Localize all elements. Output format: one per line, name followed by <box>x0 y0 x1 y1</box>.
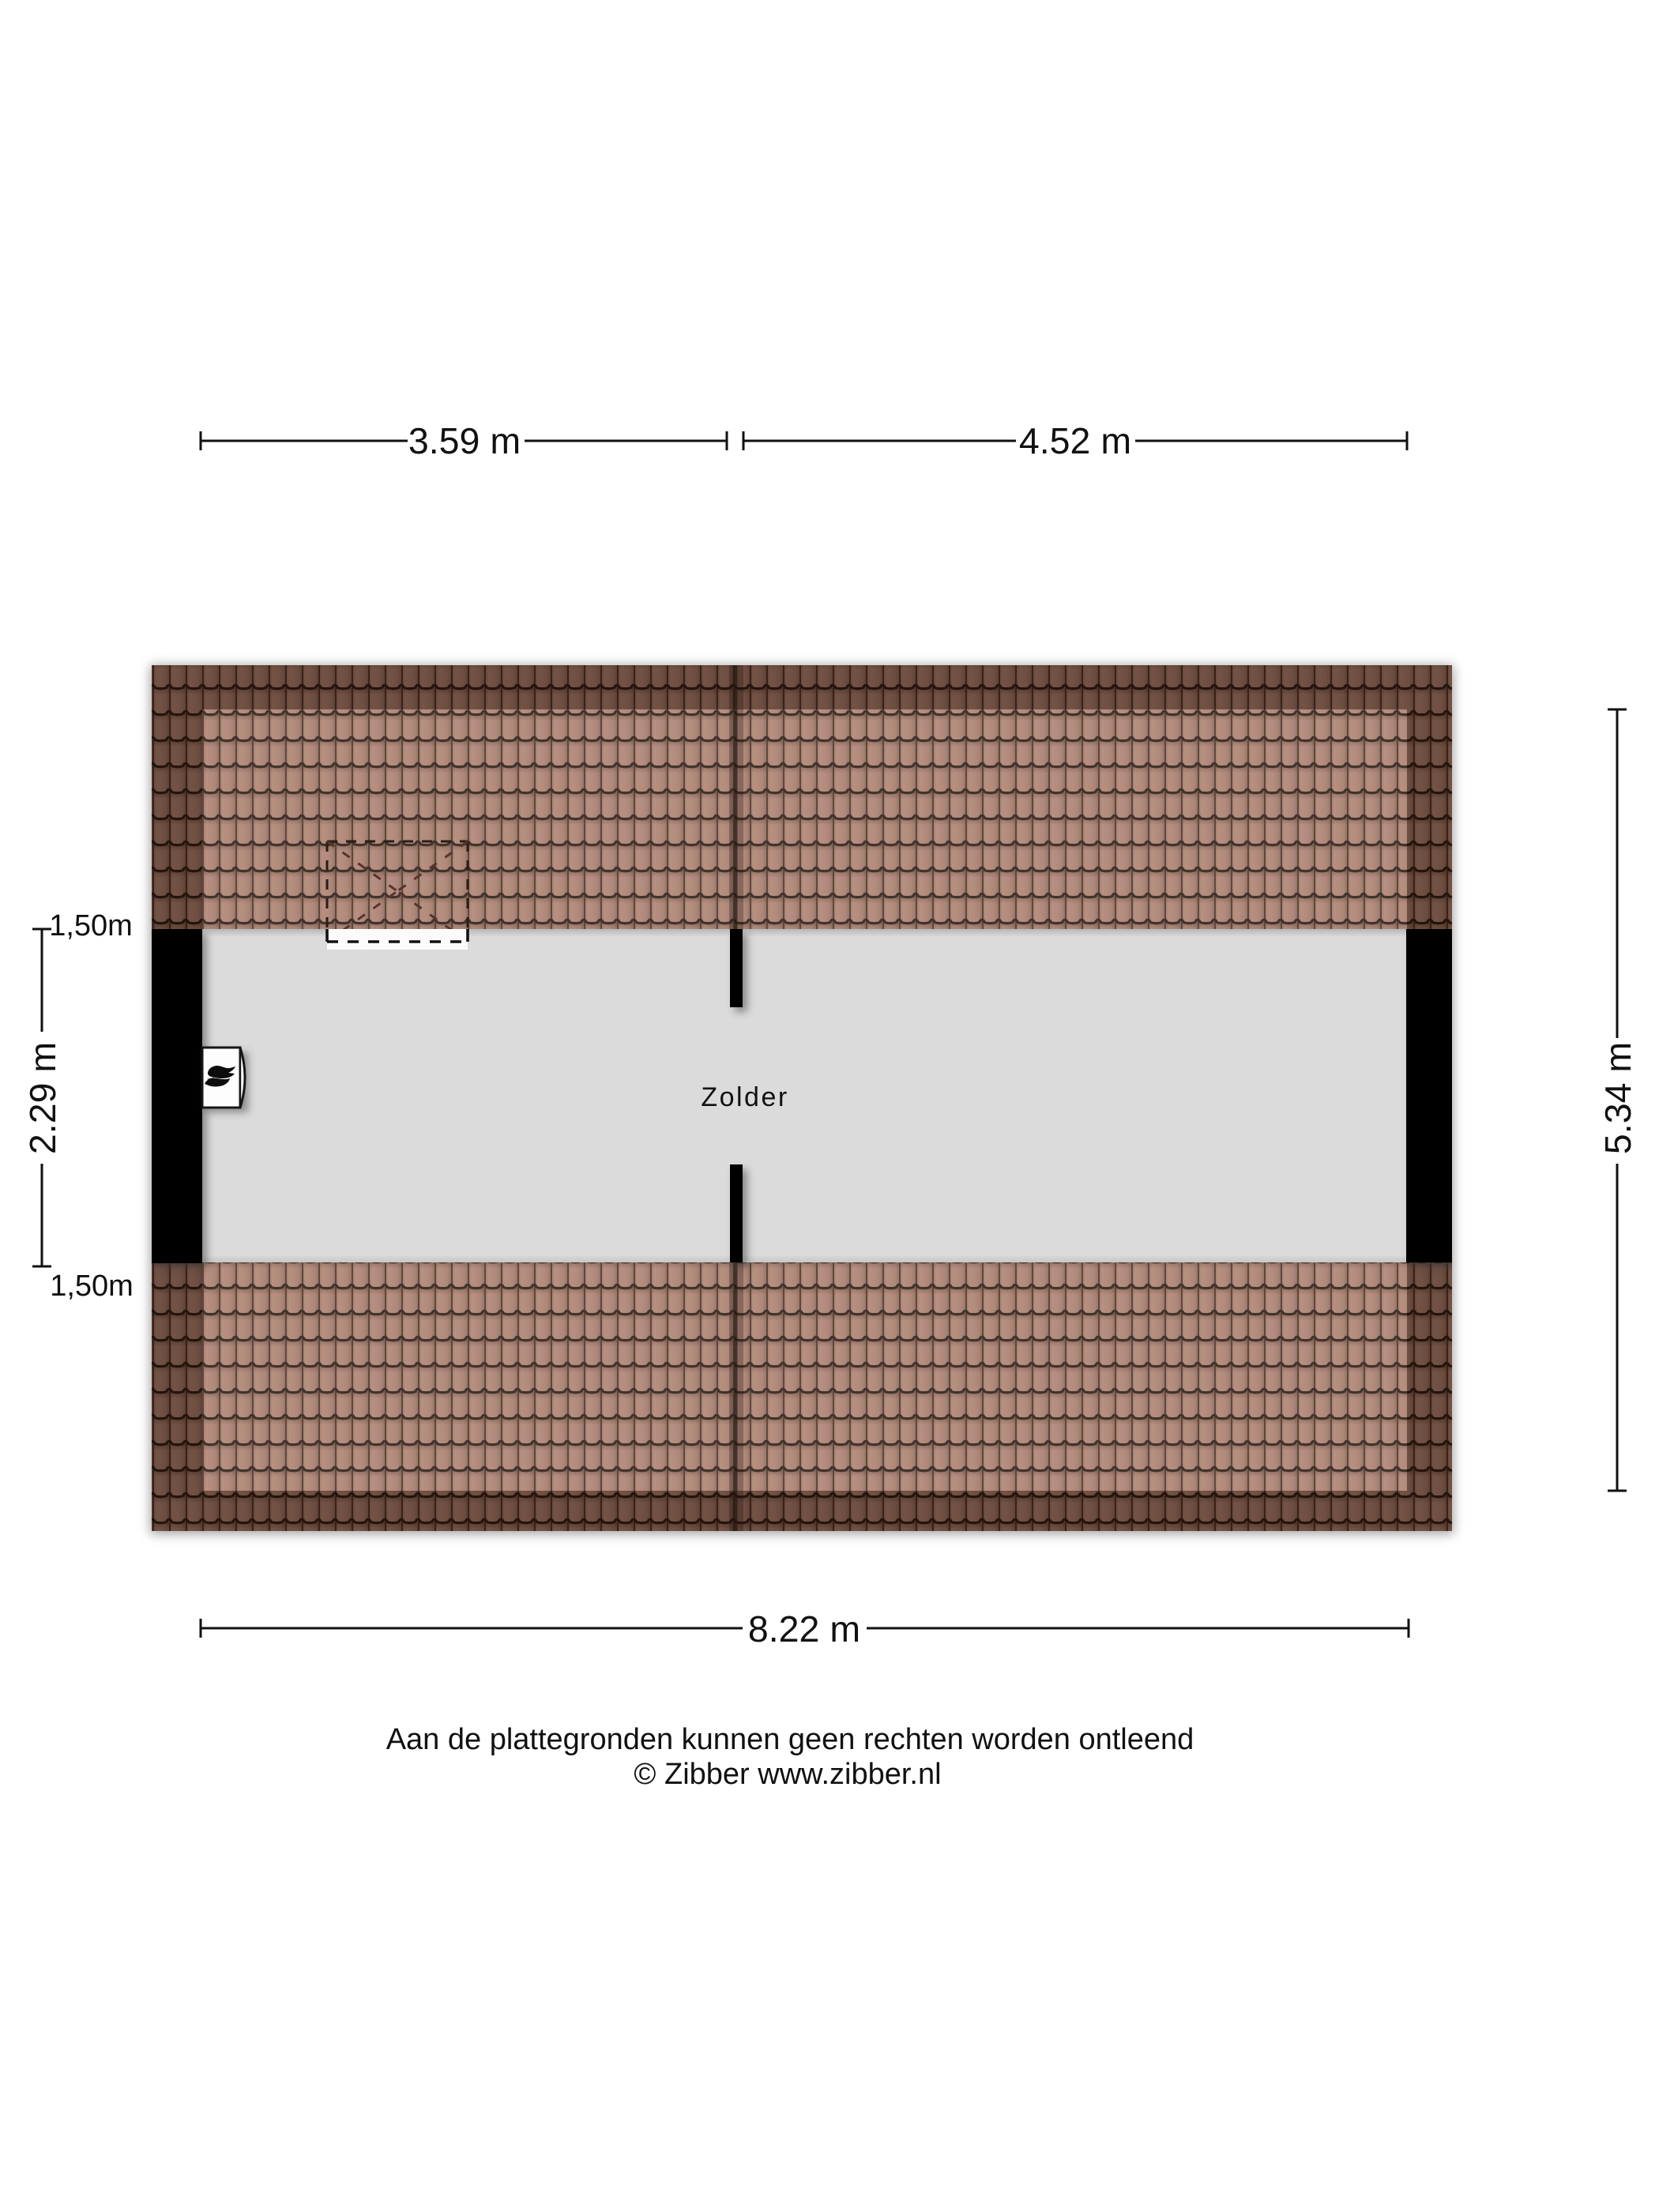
svg-text:© Zibber www.zibber.nl: © Zibber www.zibber.nl <box>634 1758 941 1791</box>
svg-text:2.29 m: 2.29 m <box>22 1042 63 1154</box>
svg-text:Zolder: Zolder <box>701 1082 788 1112</box>
svg-text:3.59 m: 3.59 m <box>408 420 521 461</box>
svg-text:4.52 m: 4.52 m <box>1019 420 1131 461</box>
svg-text:8.22 m: 8.22 m <box>748 1608 860 1650</box>
svg-text:1,50m: 1,50m <box>50 1270 134 1303</box>
svg-text:1,50m: 1,50m <box>49 909 133 942</box>
svg-text:Aan de plattegronden kunnen ge: Aan de plattegronden kunnen geen rechten… <box>386 1723 1194 1756</box>
svg-text:5.34 m: 5.34 m <box>1597 1042 1638 1154</box>
